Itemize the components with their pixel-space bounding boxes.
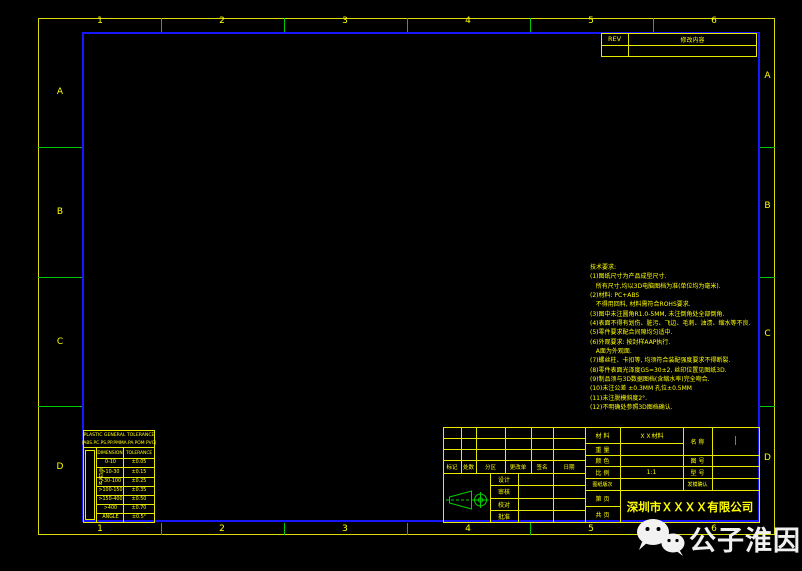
technical-requirements: 技术要求: (1)图纸尺寸为产品成型尺寸. 所有尺寸,均以3D电脑图档为准(单位… <box>590 263 770 413</box>
tolerance-row-dimension: >400 <box>98 504 123 513</box>
tolerance-row-tolerance: ±0.05 <box>124 458 154 467</box>
name-label: 名 称 <box>683 427 712 455</box>
scale-value: 1:1 <box>620 466 683 478</box>
tolerance-row-tolerance: ±0.50 <box>124 495 154 504</box>
tolerance-row-tolerance: ±0.70 <box>124 504 154 513</box>
tolerance-row-dimension: >10-30 <box>98 467 123 477</box>
zone-number-bottom: 4 <box>456 523 480 534</box>
zone-letter-left: B <box>38 206 82 217</box>
zone-number-top: 1 <box>88 16 112 26</box>
tolerance-row-tolerance: ±0.15 <box>124 467 154 477</box>
mold-confirm-label: 发模确认 <box>683 478 712 490</box>
revision-col-sign: 签名 <box>531 460 553 473</box>
tech-requirements-line: A面为外观面. <box>590 347 770 356</box>
tech-requirements-line: (6)外观要求: 按封样AAP执行. <box>590 338 770 347</box>
color-label: 颜 色 <box>585 455 620 466</box>
page-label: 第 页 <box>585 490 620 506</box>
model-label: 型 号 <box>683 466 712 478</box>
name-value: | <box>712 427 759 455</box>
zone-number-bottom: 3 <box>333 523 357 534</box>
watermark-text: 公子淮因 <box>689 519 801 558</box>
tech-requirements-line: 所有尺寸,均以3D电脑图档为准(单位均为毫米). <box>590 282 770 291</box>
material-value: ＸＸ材料 <box>620 427 683 443</box>
tolerance-table-title: PLASTIC GENERAL TOLERANCE <box>84 431 154 439</box>
revision-col-mark: 标记 <box>443 460 461 473</box>
cad-drawing-sheet: 1 2 3 4 5 6 1 2 3 4 5 6 A B C D A B C D … <box>0 0 802 571</box>
approval-design-label: 设计 <box>490 473 518 485</box>
tolerance-row-tolerance: ±0.5° <box>124 513 154 522</box>
zone-letter-left: D <box>38 461 82 472</box>
tech-requirements-line: (2)材料: PC+ABS <box>590 291 770 300</box>
tolerance-row-dimension: >100-150 <box>98 486 123 495</box>
zone-number-bottom: 2 <box>210 523 234 534</box>
weight-label: 重 量 <box>585 443 620 455</box>
zone-letter-right: A <box>760 70 775 81</box>
zone-letter-left: C <box>38 336 82 347</box>
pages-label: 共 页 <box>585 506 620 522</box>
tech-requirements-line: (1)图纸尺寸为产品成型尺寸. <box>590 272 770 281</box>
tech-requirements-line: (8)零件表面光泽度GS=30±2, 丝印位置见图纸3D. <box>590 366 770 375</box>
tolerance-row-tolerance: ±0.25 <box>124 477 154 486</box>
tolerance-row-dimension: >150-400 <box>98 495 123 504</box>
tolerance-table-subtitle: (ABS.PC.PS.PP.PMMA.PA.POM PVC) <box>84 439 154 447</box>
zone-number-top: 4 <box>456 16 480 26</box>
rev-change-header: 修改内容 <box>628 33 757 45</box>
tech-requirements-line: (4)表面不得有划伤、脏污、飞边、毛刺、油渍、缩水等不良. <box>590 319 770 328</box>
tech-requirements-line: (9)制品须与3D数据图档(含缩水率)完全吻合. <box>590 375 770 384</box>
zone-letter-left: A <box>38 86 82 97</box>
tech-requirements-line: 不得用回料, 材料需符合ROHS要求. <box>590 300 770 309</box>
tech-requirements-line: (11)未注脱模斜度2°. <box>590 394 770 403</box>
drawing-no-label: 图 号 <box>683 455 712 466</box>
rev-label: REV <box>601 33 628 45</box>
sheet-revision-label: 图纸版次 <box>585 478 620 490</box>
zone-letter-right: B <box>760 200 775 211</box>
zone-letter-right: D <box>760 452 775 463</box>
tolerance-row-dimension: ANGLE <box>98 513 123 522</box>
tech-requirements-line: (7)螺丝柱、卡扣等, 均须符合装配强度要求不得断裂. <box>590 356 770 365</box>
scale-label: 比 例 <box>585 466 620 478</box>
zone-number-bottom: 5 <box>579 523 603 534</box>
tolerance-row-dimension: 0-10 <box>98 458 123 467</box>
material-label: 材 料 <box>585 427 620 443</box>
zone-number-top: 3 <box>333 16 357 26</box>
revision-col-count: 处数 <box>461 460 476 473</box>
zone-number-top: 2 <box>210 16 234 26</box>
tech-requirements-line: (12)不明确处参照3D图档确认. <box>590 403 770 412</box>
zone-number-bottom: 1 <box>88 523 112 534</box>
approval-review-label: 审核 <box>490 485 518 498</box>
revision-col-date: 日期 <box>553 460 585 473</box>
zone-number-top: 5 <box>579 16 603 26</box>
tech-requirements-line: (3)图中未注圆角R1.0-5MM, 未注倒角处全部倒角. <box>590 310 770 319</box>
tolerance-col-dimension: DIMENSION <box>97 448 123 458</box>
wechat-icon <box>633 516 689 560</box>
tolerance-col-tolerance: TOLERANCE <box>124 448 154 458</box>
approval-check-label: 校对 <box>490 498 518 510</box>
approval-approve-label: 批准 <box>490 510 518 522</box>
revision-col-order: 更改单 <box>505 460 531 473</box>
tolerance-row-dimension: >30-100 <box>98 477 123 486</box>
watermark: 公子淮因 <box>633 516 801 560</box>
tolerance-row-tolerance: ±0.35 <box>124 486 154 495</box>
tech-requirements-line: (10)未注公差 ±0.3MM 孔位±0.5MM <box>590 384 770 393</box>
tech-requirements-title: 技术要求: <box>590 263 770 272</box>
first-angle-projection-icon <box>446 491 489 509</box>
revision-col-zone: 分区 <box>476 460 505 473</box>
tech-requirements-line: (5)零件要求配合间隙均匀适中. <box>590 328 770 337</box>
zone-number-top: 6 <box>702 16 726 26</box>
